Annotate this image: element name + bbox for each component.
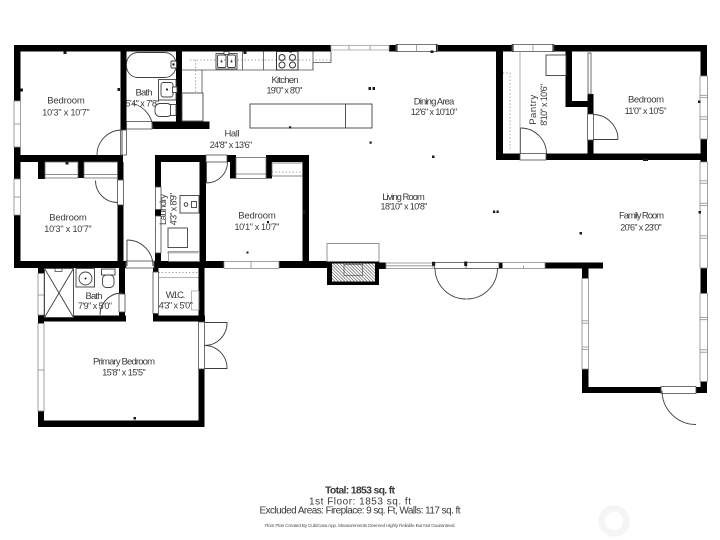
svg-text:20'6" x 23'0": 20'6" x 23'0" [620, 222, 662, 232]
svg-text:Bedroom: Bedroom [628, 95, 664, 106]
svg-text:Primary Bedroom: Primary Bedroom [93, 357, 155, 368]
svg-text:15'8" x 15'5": 15'8" x 15'5" [102, 368, 146, 378]
svg-text:Hall: Hall [225, 129, 240, 140]
svg-text:10'3" x 10'7": 10'3" x 10'7" [42, 108, 90, 118]
svg-text:Bedroom: Bedroom [238, 211, 276, 222]
svg-text:4'3" x 5'0": 4'3" x 5'0" [159, 300, 193, 310]
svg-text:10'1" x 10'7": 10'1" x 10'7" [235, 222, 280, 232]
svg-text:Family Room: Family Room [619, 211, 664, 222]
svg-text:Bedroom: Bedroom [47, 96, 85, 107]
svg-text:12'6" x 10'10": 12'6" x 10'10" [411, 107, 458, 117]
svg-text:24'8" x 13'6": 24'8" x 13'6" [210, 140, 253, 150]
svg-text:Bath: Bath [136, 88, 153, 99]
svg-text:Pantry: Pantry [528, 95, 539, 125]
svg-text:18'10" x 10'8": 18'10" x 10'8" [381, 201, 428, 211]
svg-text:Bedroom: Bedroom [49, 212, 87, 223]
svg-text:5'4" x 7'8": 5'4" x 7'8" [126, 98, 160, 108]
svg-text:Dining Area: Dining Area [414, 97, 455, 108]
svg-text:10'3" x 10'7": 10'3" x 10'7" [44, 224, 92, 234]
svg-text:Laundry: Laundry [158, 194, 169, 225]
svg-text:Total: 1853 sq. ft: Total: 1853 sq. ft [325, 485, 396, 497]
svg-text:4'3" x 8'9": 4'3" x 8'9" [169, 193, 179, 226]
svg-text:Excluded Areas: Fireplace: 9 s: Excluded Areas: Fireplace: 9 sq. Ft, Wal… [260, 506, 461, 517]
svg-text:7'9" x 5'0": 7'9" x 5'0" [78, 301, 112, 311]
svg-text:Floor Plan Created By CubiCasa: Floor Plan Created By CubiCasa App. Meas… [265, 523, 456, 529]
svg-text:11'0" x 10'5": 11'0" x 10'5" [625, 106, 667, 116]
svg-text:8'10" x 10'6": 8'10" x 10'6" [539, 84, 549, 126]
svg-text:W.I.C.: W.I.C. [166, 290, 186, 301]
svg-text:19'0" x 8'0": 19'0" x 8'0" [267, 85, 303, 95]
